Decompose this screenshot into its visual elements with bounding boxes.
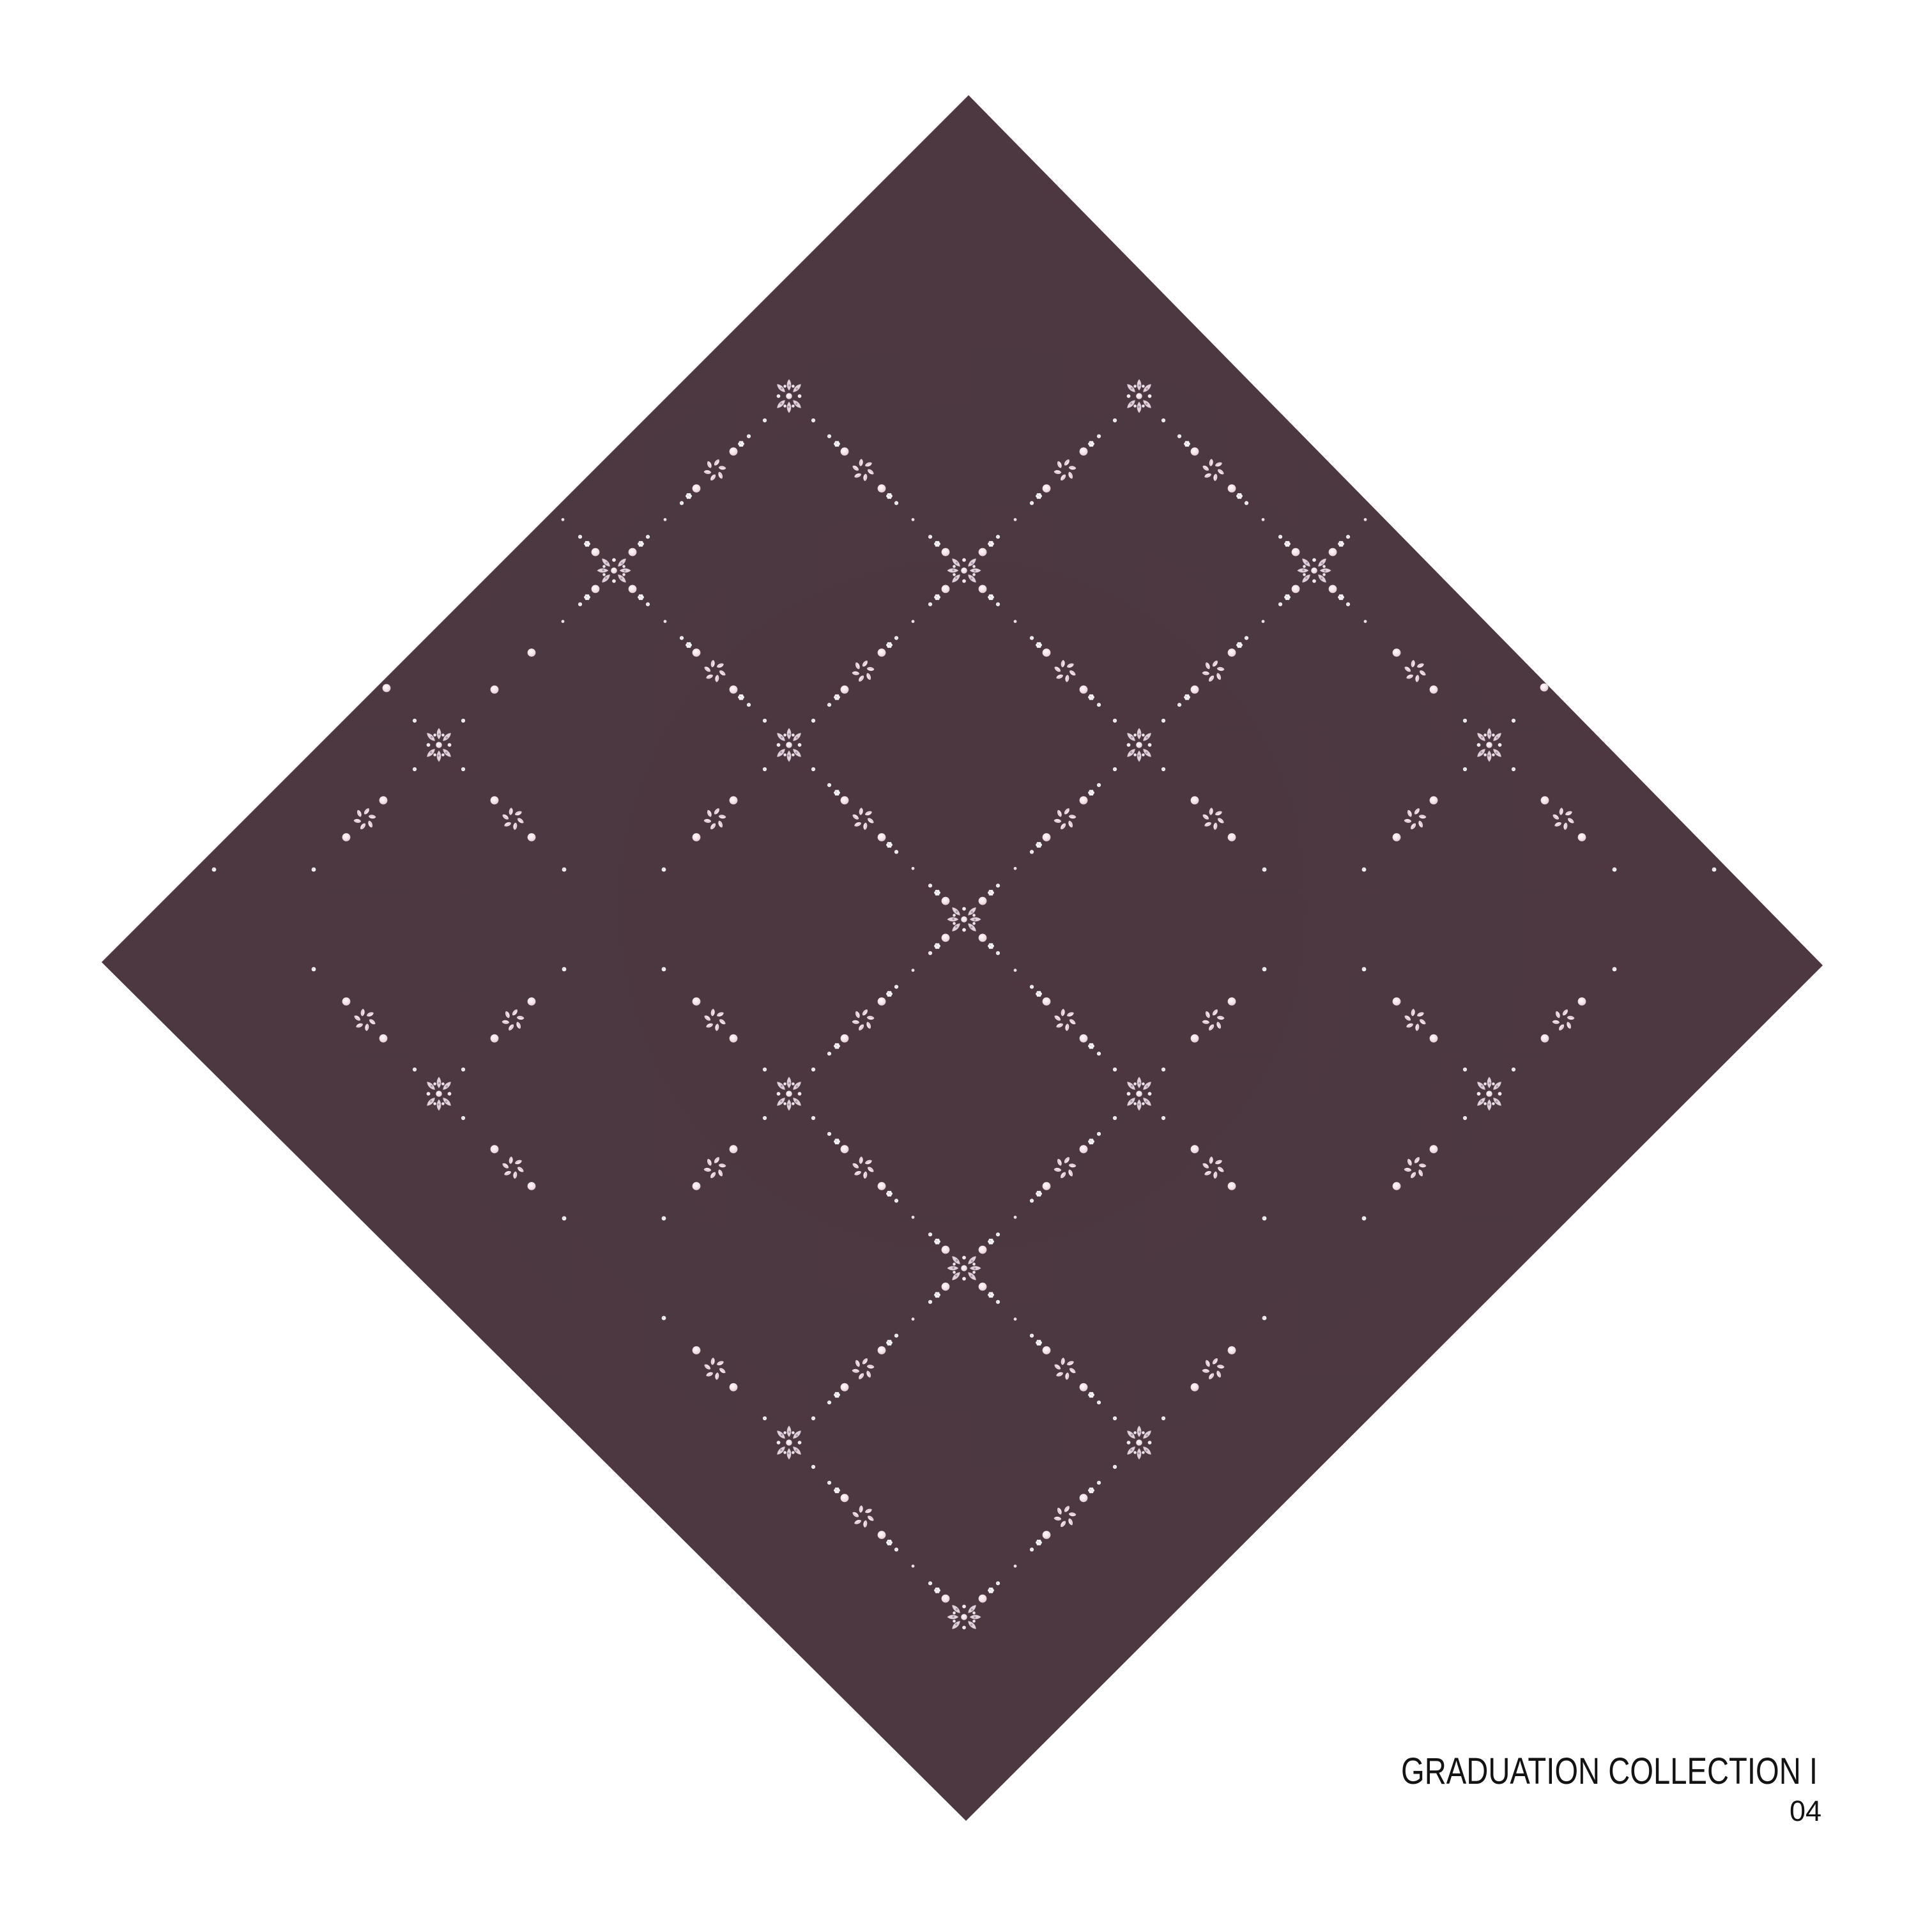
svg-text:GRADUATION COLLECTION I: GRADUATION COLLECTION I [1401,1751,1818,1792]
svg-text:04: 04 [1790,1795,1821,1827]
